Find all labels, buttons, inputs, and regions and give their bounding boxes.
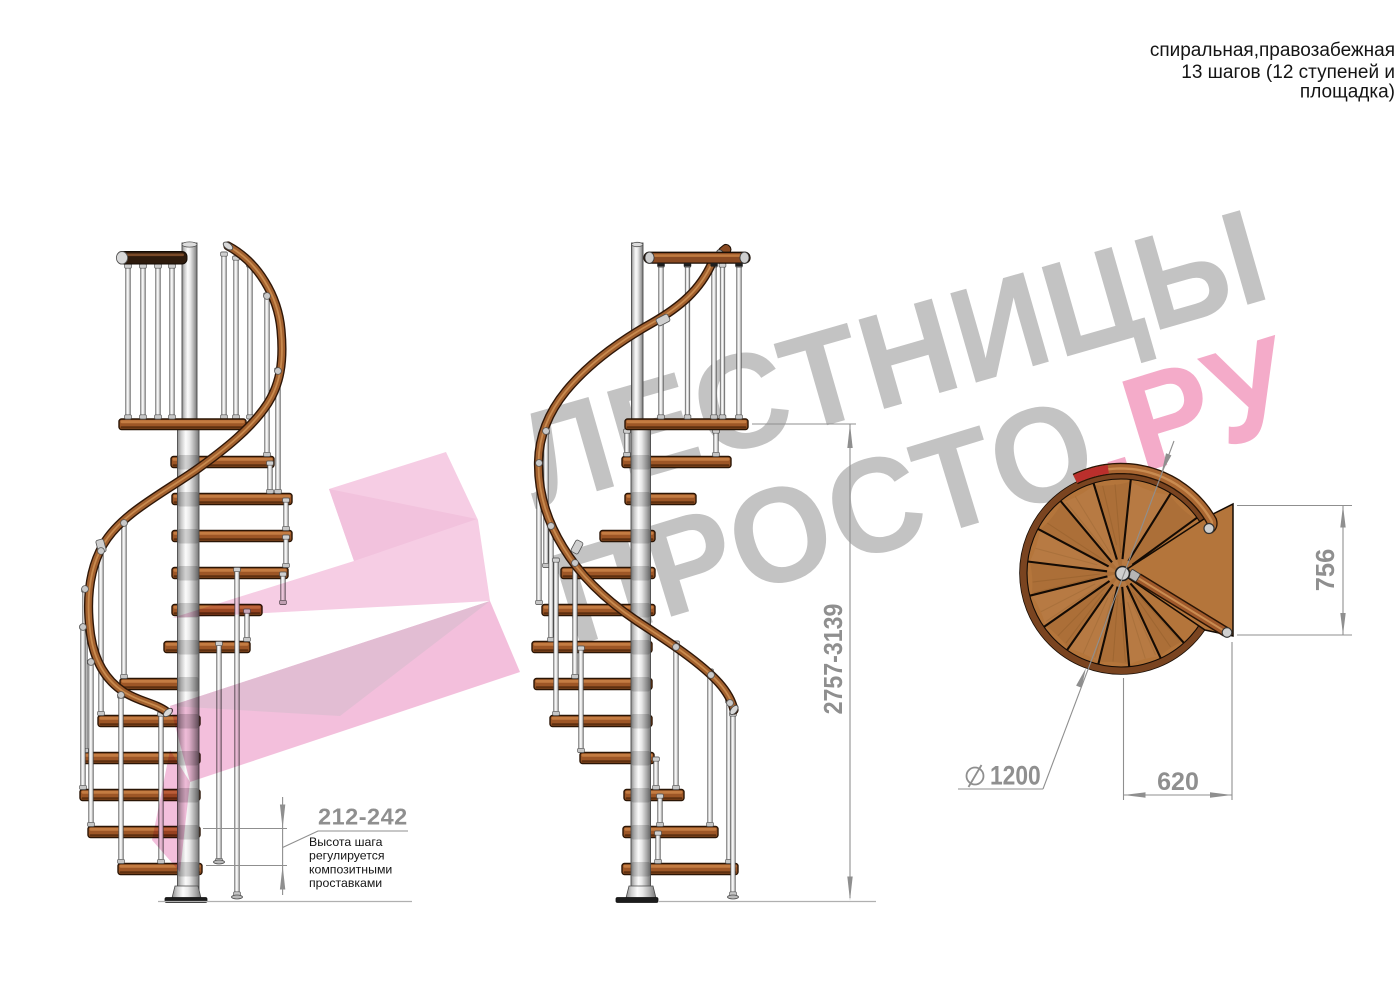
svg-text:1200: 1200 — [990, 762, 1041, 791]
svg-text:композитными: композитными — [309, 862, 392, 876]
svg-text:756: 756 — [1312, 549, 1340, 592]
svg-text:2757-3139: 2757-3139 — [820, 604, 849, 715]
svg-text:площадка): площадка) — [1300, 82, 1395, 103]
svg-text:Высота шага: Высота шага — [309, 835, 383, 849]
svg-text:212-242: 212-242 — [318, 804, 408, 830]
svg-text:620: 620 — [1157, 768, 1199, 796]
svg-text:спиральная,правозабежная: спиральная,правозабежная — [1150, 40, 1395, 61]
svg-text:проставками: проставками — [309, 876, 382, 890]
svg-text:регулируется: регулируется — [309, 849, 385, 863]
svg-text:13 шагов (12 ступеней и: 13 шагов (12 ступеней и — [1181, 62, 1395, 83]
